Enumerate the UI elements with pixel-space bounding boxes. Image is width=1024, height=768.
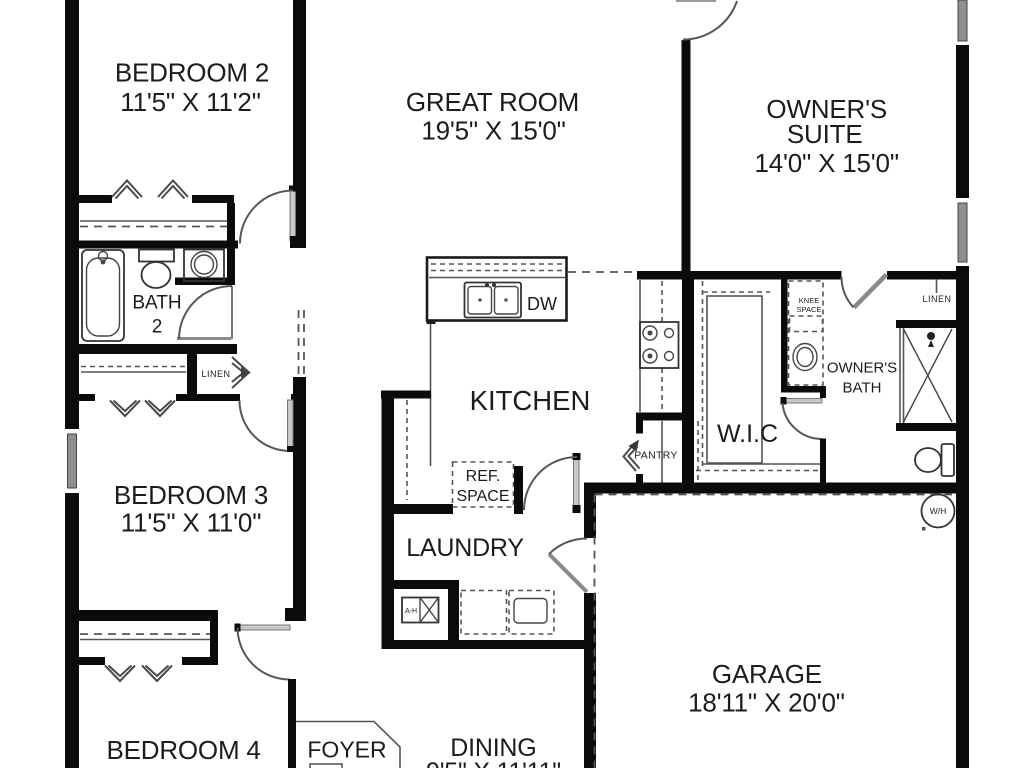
svg-text:BEDROOM 3: BEDROOM 3 (114, 480, 268, 510)
svg-text:19'5" X 15'0": 19'5" X 15'0" (421, 116, 565, 146)
svg-text:BATH: BATH (843, 380, 882, 397)
svg-text:A-H: A-H (405, 608, 417, 615)
svg-text:PANTRY: PANTRY (634, 450, 677, 462)
svg-text:14'0" X 15'0": 14'0" X 15'0" (755, 148, 899, 178)
svg-text:LINEN: LINEN (922, 294, 951, 304)
svg-text:GARAGE: GARAGE (712, 659, 822, 689)
svg-text:OWNER'S: OWNER'S (827, 360, 897, 377)
svg-text:SUITE: SUITE (787, 119, 863, 149)
svg-text:BATH: BATH (132, 293, 181, 314)
svg-text:KNEE: KNEE (799, 296, 819, 305)
svg-text:REF.: REF. (466, 468, 501, 485)
svg-text:BEDROOM 4: BEDROOM 4 (106, 735, 260, 765)
svg-text:18'11" X 20'0": 18'11" X 20'0" (688, 688, 845, 718)
svg-text:FOYER: FOYER (307, 737, 386, 763)
svg-text:KITCHEN: KITCHEN (470, 385, 591, 416)
svg-text:GREAT ROOM: GREAT ROOM (406, 87, 579, 117)
svg-text:9'5" X 11'11": 9'5" X 11'11" (426, 758, 561, 768)
svg-text:LAUNDRY: LAUNDRY (406, 534, 524, 562)
svg-text:W/H: W/H (930, 506, 947, 516)
svg-text:SPACE: SPACE (456, 488, 509, 505)
svg-text:BEDROOM 2: BEDROOM 2 (115, 58, 269, 88)
svg-text:LINEN: LINEN (201, 369, 230, 379)
svg-text:11'5" X 11'2": 11'5" X 11'2" (120, 87, 260, 117)
svg-text:2: 2 (152, 317, 163, 338)
svg-text:SPACE: SPACE (797, 305, 822, 314)
svg-text:W.I.C: W.I.C (717, 420, 778, 448)
svg-text:11'5" X 11'0": 11'5" X 11'0" (121, 508, 261, 538)
svg-text:DW: DW (527, 294, 557, 314)
